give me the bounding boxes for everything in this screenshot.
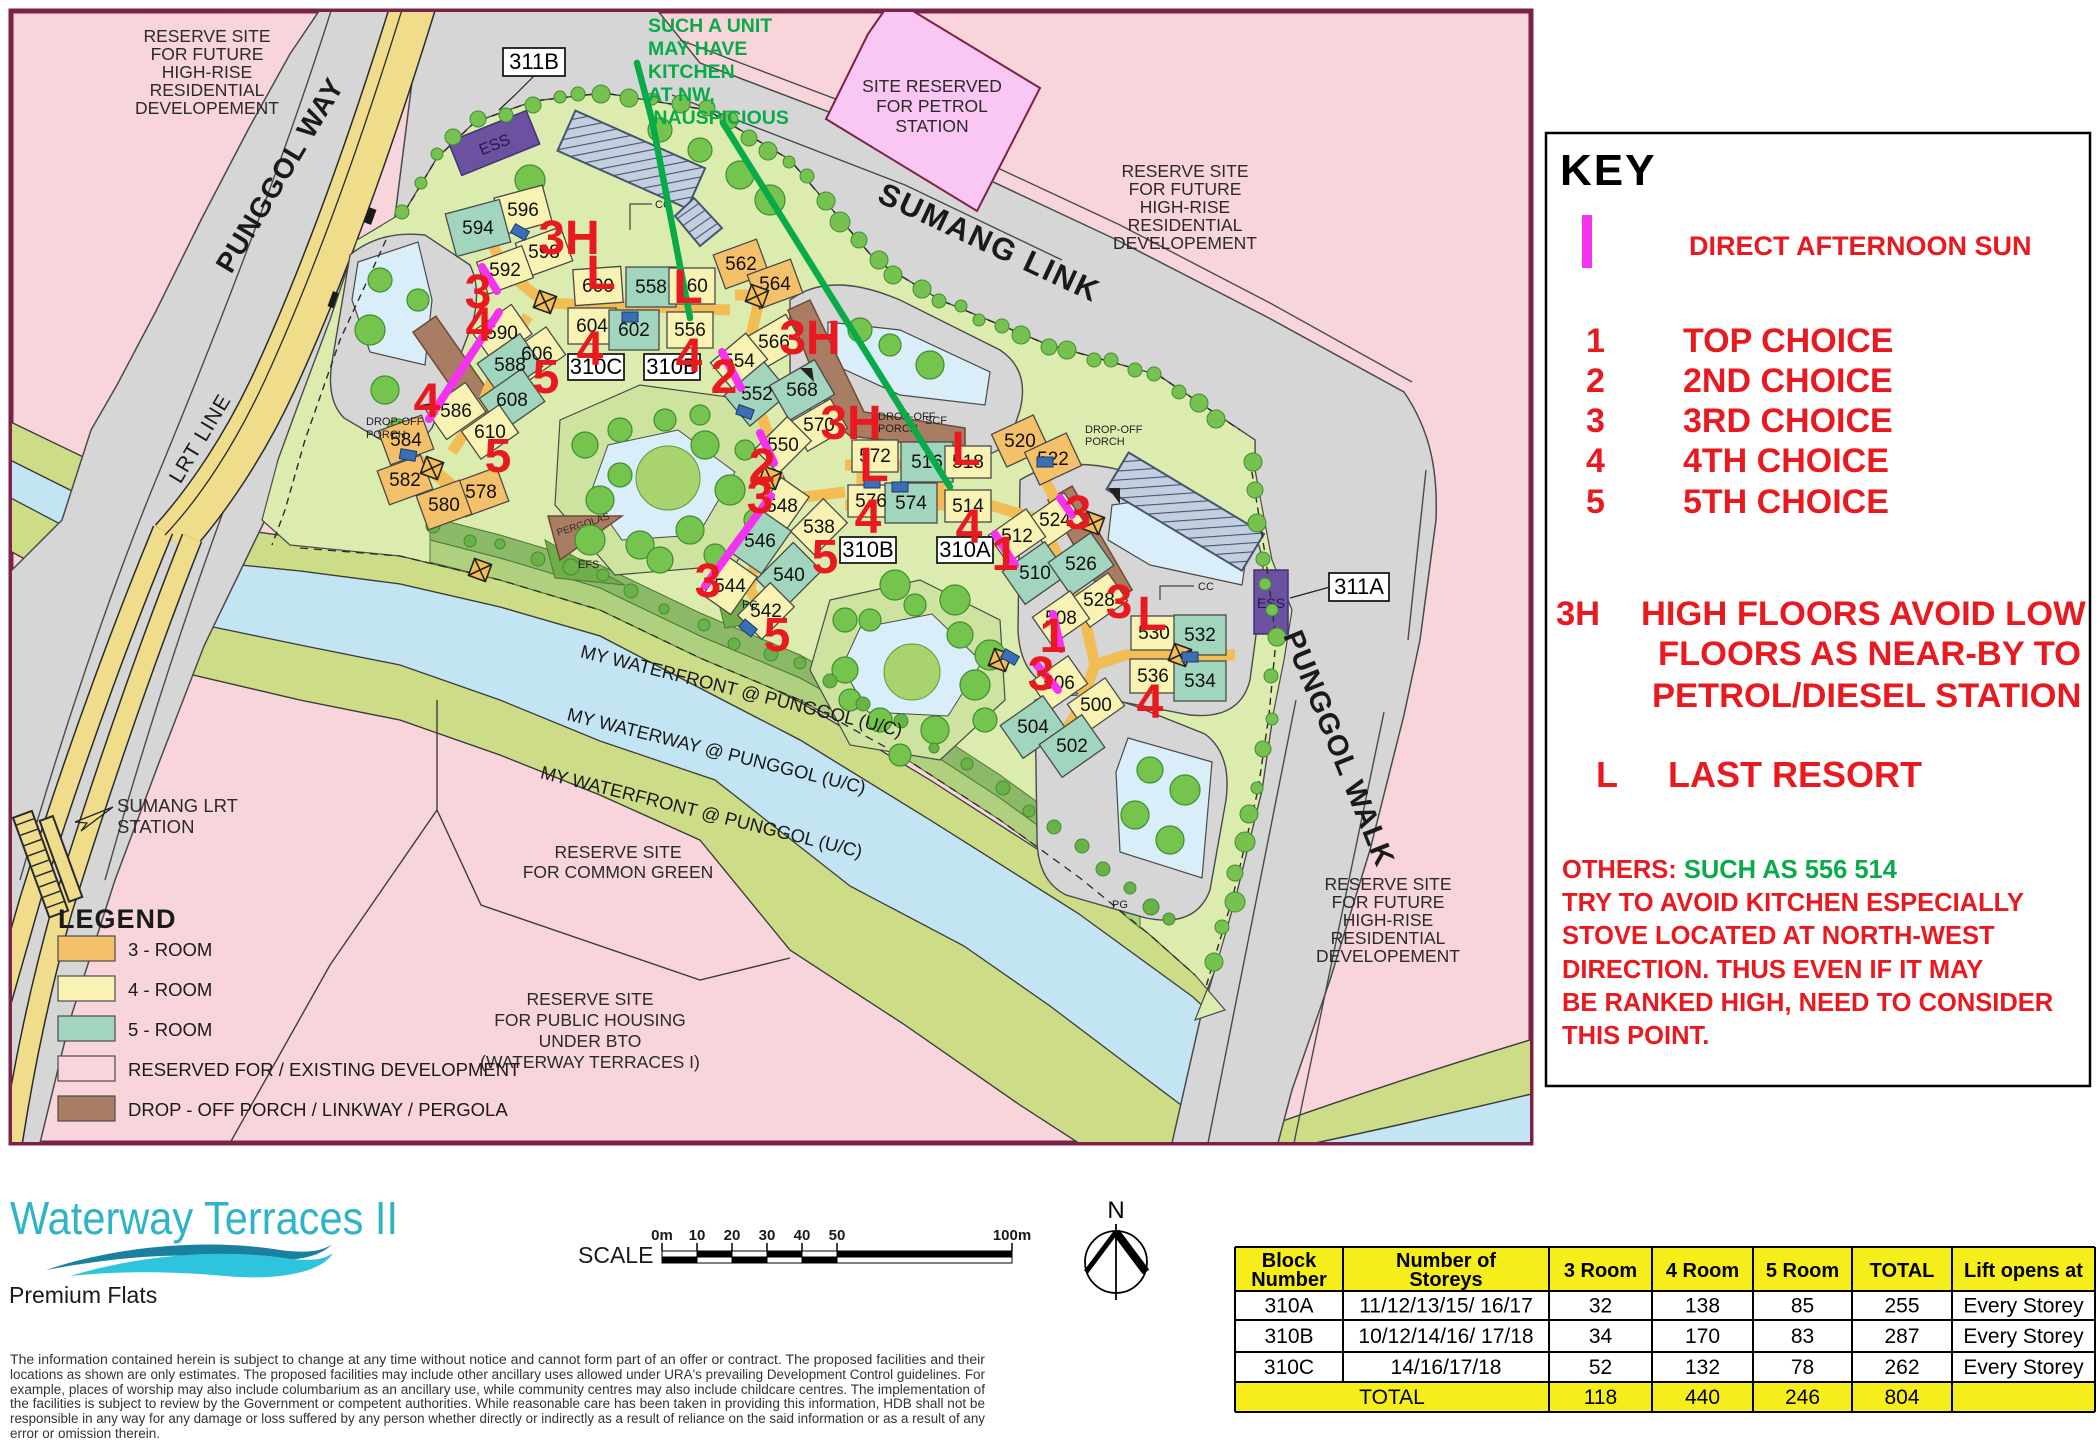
svg-text:L: L [951, 423, 980, 476]
svg-text:L: L [1137, 588, 1166, 641]
svg-text:RESERVE SITE: RESERVE SITE [143, 26, 270, 46]
svg-text:34: 34 [1589, 1325, 1613, 1348]
svg-text:FOR FUTURE: FOR FUTURE [1129, 179, 1242, 199]
svg-text:4: 4 [1137, 676, 1164, 729]
svg-text:KITCHEN: KITCHEN [648, 61, 735, 83]
svg-text:592: 592 [489, 260, 521, 281]
svg-text:5 Room: 5 Room [1766, 1260, 1839, 1282]
svg-text:246: 246 [1785, 1386, 1820, 1409]
svg-text:118: 118 [1584, 1386, 1617, 1409]
svg-text:170: 170 [1685, 1325, 1720, 1348]
svg-text:DEVELOPEMENT: DEVELOPEMENT [1316, 946, 1460, 966]
svg-text:responsible in any way for any: responsible in any way for any damage or… [10, 1411, 985, 1426]
svg-text:558: 558 [635, 277, 667, 298]
svg-text:2: 2 [711, 351, 738, 404]
svg-text:TOTAL: TOTAL [1359, 1386, 1425, 1409]
svg-text:3 - ROOM: 3 - ROOM [128, 939, 212, 960]
svg-text:SCALE: SCALE [578, 1242, 653, 1268]
svg-text:5TH CHOICE: 5TH CHOICE [1683, 483, 1889, 521]
svg-text:602: 602 [618, 320, 650, 341]
svg-text:FOR FUTURE: FOR FUTURE [1332, 892, 1445, 912]
svg-text:1: 1 [992, 528, 1019, 581]
svg-text:85: 85 [1791, 1295, 1814, 1318]
svg-text:RESERVE SITE: RESERVE SITE [526, 989, 653, 1009]
svg-text:5: 5 [533, 351, 560, 404]
svg-text:N: N [1107, 1197, 1124, 1224]
svg-text:PG: PG [742, 599, 758, 611]
svg-text:L: L [859, 439, 888, 492]
svg-text:534: 534 [1184, 671, 1216, 692]
svg-text:PORCH: PORCH [366, 429, 406, 441]
svg-text:578: 578 [465, 482, 497, 503]
svg-text:The information contained here: The information contained herein is subj… [10, 1352, 986, 1367]
svg-text:RESIDENTIAL: RESIDENTIAL [1331, 928, 1446, 948]
svg-text:5: 5 [764, 609, 791, 662]
svg-text:532: 532 [1184, 625, 1216, 646]
svg-text:FOR PETROL: FOR PETROL [876, 96, 988, 116]
svg-text:error or omission therein.: error or omission therein. [10, 1426, 160, 1439]
svg-text:INAUSPICIOUS: INAUSPICIOUS [648, 107, 789, 129]
svg-text:RESERVE SITE: RESERVE SITE [554, 842, 681, 862]
svg-text:310A: 310A [1264, 1295, 1313, 1318]
svg-text:THIS POINT.: THIS POINT. [1562, 1022, 1709, 1050]
svg-text:HIGH FLOORS AVOID LOW: HIGH FLOORS AVOID LOW [1641, 595, 2086, 633]
svg-text:78: 78 [1791, 1356, 1814, 1379]
svg-text:3: 3 [695, 555, 722, 608]
svg-text:Premium Flats: Premium Flats [9, 1282, 157, 1308]
svg-text:DEVELOPEMENT: DEVELOPEMENT [1113, 233, 1257, 253]
svg-text:FOR FUTURE: FOR FUTURE [151, 44, 264, 64]
svg-text:Every Storey: Every Storey [1963, 1295, 2084, 1318]
svg-text:PETROL/DIESEL STATION: PETROL/DIESEL STATION [1652, 677, 2081, 715]
svg-text:3RD CHOICE: 3RD CHOICE [1683, 402, 1893, 440]
svg-text:32: 32 [1589, 1295, 1612, 1318]
svg-text:4: 4 [956, 501, 983, 554]
svg-text:138: 138 [1685, 1295, 1720, 1318]
svg-text:RESERVE SITE: RESERVE SITE [1121, 161, 1248, 181]
svg-text:DIRECT AFTERNOON SUN: DIRECT AFTERNOON SUN [1689, 231, 2032, 261]
svg-text:83: 83 [1791, 1325, 1814, 1348]
svg-text:SUCH A UNIT: SUCH A UNIT [648, 15, 772, 37]
svg-text:RESIDENTIAL: RESIDENTIAL [1128, 215, 1243, 235]
svg-text:502: 502 [1056, 736, 1088, 757]
svg-text:588: 588 [494, 355, 526, 376]
svg-text:586: 586 [440, 401, 472, 422]
svg-text:RESIDENTIAL: RESIDENTIAL [150, 80, 265, 100]
svg-text:5: 5 [1586, 483, 1605, 521]
svg-text:3: 3 [1586, 402, 1605, 440]
svg-text:596: 596 [507, 200, 539, 221]
svg-text:LEGEND: LEGEND [58, 904, 177, 934]
svg-text:3: 3 [1065, 487, 1092, 540]
svg-text:132: 132 [1685, 1356, 1720, 1379]
svg-text:10: 10 [689, 1227, 706, 1244]
svg-text:510: 510 [1019, 563, 1051, 584]
svg-text:UNDER BTO: UNDER BTO [539, 1031, 642, 1051]
svg-text:HIGH-RISE: HIGH-RISE [162, 62, 252, 82]
svg-text:10/12/14/16/ 17/18: 10/12/14/16/ 17/18 [1358, 1325, 1533, 1348]
svg-text:TRY TO AVOID KITCHEN ESPECIALL: TRY TO AVOID KITCHEN ESPECIALLY [1562, 889, 2024, 917]
svg-text:20: 20 [724, 1227, 741, 1244]
svg-text:30: 30 [759, 1227, 776, 1244]
svg-text:14/16/17/18: 14/16/17/18 [1391, 1356, 1502, 1379]
svg-text:100m: 100m [993, 1227, 1031, 1244]
svg-text:FLOORS AS NEAR-BY TO: FLOORS AS NEAR-BY TO [1658, 635, 2081, 673]
svg-text:DEVELOPEMENT: DEVELOPEMENT [135, 98, 279, 118]
svg-text:MAY HAVE: MAY HAVE [648, 38, 747, 60]
svg-text:3H: 3H [779, 312, 840, 365]
svg-text:4 - ROOM: 4 - ROOM [128, 979, 212, 1000]
svg-text:STATION: STATION [117, 816, 194, 837]
svg-text:311A: 311A [1334, 574, 1384, 599]
svg-text:50: 50 [829, 1227, 846, 1244]
svg-text:52: 52 [1589, 1356, 1612, 1379]
svg-text:L: L [1596, 754, 1618, 795]
svg-text:608: 608 [496, 390, 528, 411]
svg-text:RESERVED FOR / EXISTING DEVELO: RESERVED FOR / EXISTING DEVELOPMENT [128, 1059, 520, 1080]
svg-text:311B: 311B [509, 49, 559, 74]
svg-text:2: 2 [1586, 362, 1605, 400]
svg-text:Storeys: Storeys [1409, 1269, 1482, 1291]
svg-text:LAST RESORT: LAST RESORT [1668, 754, 1922, 795]
svg-text:3H: 3H [1556, 595, 1600, 633]
svg-text:DIRECTION. THUS EVEN IF IT MAY: DIRECTION. THUS EVEN IF IT MAY [1562, 956, 1983, 984]
svg-text:FOR PUBLIC HOUSING: FOR PUBLIC HOUSING [494, 1010, 686, 1030]
svg-text:4: 4 [466, 299, 493, 352]
svg-text:STOVE LOCATED AT NORTH-WEST: STOVE LOCATED AT NORTH-WEST [1562, 922, 1995, 950]
svg-text:4: 4 [577, 323, 604, 376]
svg-text:526: 526 [1065, 554, 1097, 575]
svg-text:310B: 310B [1264, 1325, 1313, 1348]
svg-text:Every Storey: Every Storey [1963, 1325, 2084, 1348]
svg-text:RESERVE SITE: RESERVE SITE [1324, 874, 1451, 894]
svg-text:562: 562 [725, 254, 757, 275]
svg-text:500: 500 [1080, 695, 1112, 716]
svg-text:Every Storey: Every Storey [1963, 1356, 2084, 1379]
svg-text:4: 4 [1586, 442, 1605, 480]
svg-text:3: 3 [747, 471, 774, 524]
svg-text:262: 262 [1884, 1356, 1919, 1379]
svg-text:594: 594 [462, 218, 494, 239]
svg-text:4: 4 [855, 491, 882, 544]
svg-text:4: 4 [676, 330, 703, 383]
svg-text:SUMANG LRT: SUMANG LRT [117, 795, 238, 816]
svg-text:40: 40 [794, 1227, 811, 1244]
svg-text:4 Room: 4 Room [1666, 1260, 1739, 1282]
svg-text:BE RANKED HIGH, NEED TO CONSID: BE RANKED HIGH, NEED TO CONSIDER [1562, 989, 2053, 1017]
svg-text:582: 582 [389, 470, 421, 491]
svg-text:Lift opens at: Lift opens at [1964, 1260, 2083, 1282]
svg-text:504: 504 [1017, 717, 1049, 738]
svg-text:3: 3 [1106, 576, 1133, 629]
svg-text:0m: 0m [651, 1227, 673, 1244]
svg-text:11/12/13/15/ 16/17: 11/12/13/15/ 16/17 [1359, 1295, 1533, 1318]
svg-text:540: 540 [773, 565, 805, 586]
svg-text:locations as shown are only es: locations as shown are only estimates. T… [10, 1367, 985, 1382]
svg-text:OTHERS: SUCH AS 556 514: OTHERS: SUCH AS 556 514 [1562, 856, 1898, 884]
svg-text:574: 574 [895, 493, 927, 514]
svg-text:L: L [673, 261, 702, 314]
svg-text:CC: CC [1198, 581, 1214, 593]
svg-text:520: 520 [1004, 431, 1036, 452]
svg-text:DROP-OFF: DROP-OFF [1085, 424, 1143, 436]
svg-text:4: 4 [414, 375, 441, 428]
svg-text:310C: 310C [1264, 1356, 1314, 1379]
svg-text:HIGH-RISE: HIGH-RISE [1140, 197, 1230, 217]
svg-text:SITE RESERVED: SITE RESERVED [862, 76, 1002, 96]
svg-text:287: 287 [1884, 1325, 1919, 1348]
svg-text:255: 255 [1884, 1295, 1919, 1318]
svg-text:546: 546 [744, 531, 776, 552]
svg-text:example, places of worship may: example, places of worship may also incl… [10, 1382, 985, 1397]
svg-text:SCF: SCF [925, 415, 947, 427]
svg-text:EFS: EFS [578, 559, 599, 571]
svg-text:552: 552 [741, 384, 773, 405]
svg-text:PORCH: PORCH [1085, 436, 1125, 448]
svg-text:1: 1 [1586, 322, 1605, 360]
svg-text:580: 580 [428, 495, 460, 516]
svg-text:FOR COMMON GREEN: FOR COMMON GREEN [523, 862, 714, 882]
svg-text:KEY: KEY [1560, 146, 1656, 195]
svg-text:5: 5 [812, 531, 839, 584]
svg-text:STATION: STATION [895, 116, 968, 136]
svg-text:4TH CHOICE: 4TH CHOICE [1683, 442, 1889, 480]
svg-text:PG: PG [1112, 899, 1128, 911]
svg-text:TOP CHOICE: TOP CHOICE [1683, 322, 1893, 360]
svg-text:3: 3 [1028, 648, 1055, 701]
svg-text:2ND CHOICE: 2ND CHOICE [1683, 362, 1893, 400]
svg-text:804: 804 [1884, 1386, 1919, 1409]
svg-text:HIGH-RISE: HIGH-RISE [1343, 910, 1433, 930]
svg-text:Number: Number [1251, 1269, 1327, 1291]
svg-text:TOTAL: TOTAL [1870, 1260, 1935, 1282]
svg-text:AT NW,: AT NW, [648, 84, 715, 106]
svg-text:5: 5 [485, 430, 512, 483]
svg-text:Waterway Terraces II: Waterway Terraces II [10, 1192, 398, 1244]
svg-text:3 Room: 3 Room [1564, 1260, 1637, 1282]
svg-text:5 - ROOM: 5 - ROOM [128, 1019, 212, 1040]
svg-text:568: 568 [786, 380, 818, 401]
svg-text:DROP - OFF PORCH / LINKWAY / P: DROP - OFF PORCH / LINKWAY / PERGOLA [128, 1099, 508, 1120]
svg-text:the facilities is subject to r: the facilities is subject to review by t… [10, 1396, 985, 1411]
svg-text:440: 440 [1685, 1386, 1720, 1409]
svg-text:L: L [586, 247, 615, 300]
